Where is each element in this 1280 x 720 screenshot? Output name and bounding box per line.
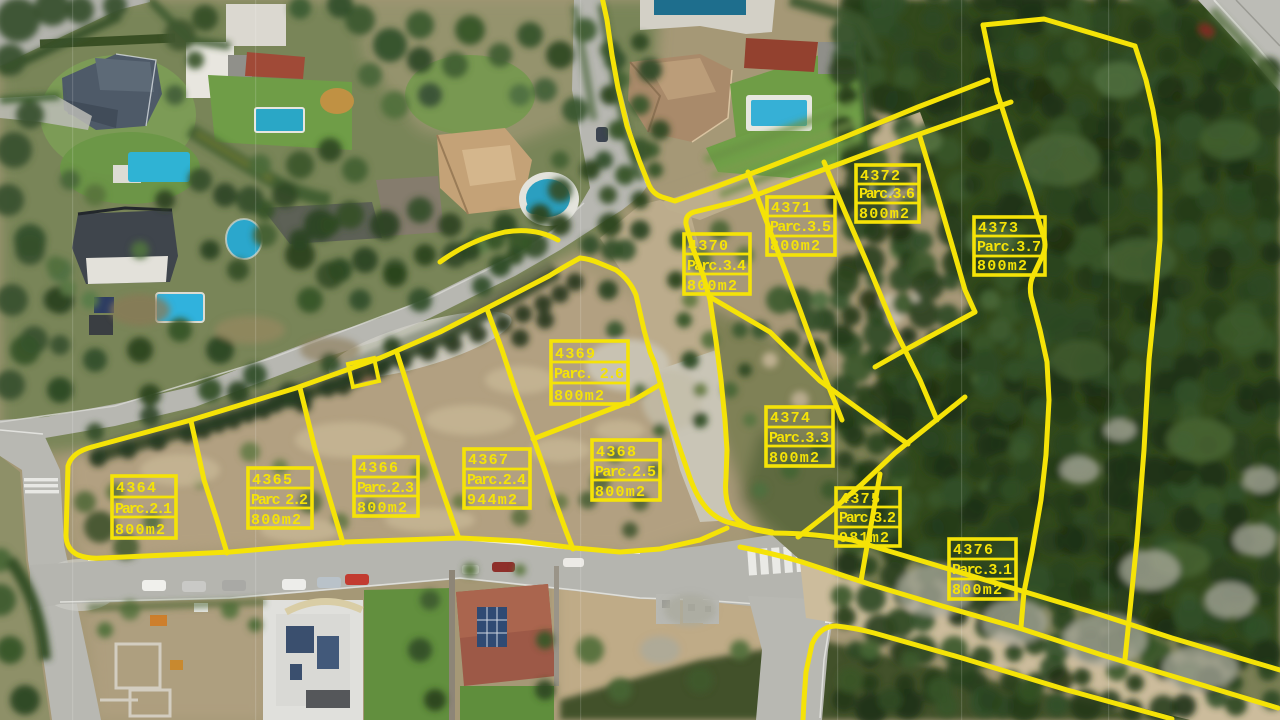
svg-text:Parc.2.5: Parc.2.5: [595, 464, 656, 481]
svg-text:4372: 4372: [860, 168, 900, 185]
svg-text:4375: 4375: [840, 491, 880, 508]
svg-text:944m2: 944m2: [467, 492, 517, 509]
svg-text:4373: 4373: [978, 220, 1018, 237]
svg-text:Parc.3.4: Parc.3.4: [687, 258, 746, 275]
svg-text:800m2: 800m2: [859, 206, 909, 223]
svg-text:800m2: 800m2: [554, 388, 604, 405]
svg-text:Parc.3.2: Parc.3.2: [839, 510, 896, 527]
svg-text:4376: 4376: [953, 542, 993, 559]
svg-text:Parc.3.1: Parc.3.1: [952, 562, 1012, 579]
svg-text:800m2: 800m2: [251, 512, 301, 529]
svg-text:800m2: 800m2: [770, 238, 820, 255]
svg-text:4364: 4364: [116, 480, 156, 497]
svg-text:800m2: 800m2: [357, 500, 407, 517]
svg-text:800m2: 800m2: [977, 258, 1027, 275]
svg-text:Parc.2.1: Parc.2.1: [115, 501, 172, 518]
svg-text:4365: 4365: [252, 472, 292, 489]
svg-text:4368: 4368: [596, 444, 636, 461]
svg-text:800m2: 800m2: [952, 582, 1002, 599]
svg-text:800m2: 800m2: [769, 450, 819, 467]
svg-text:4371: 4371: [771, 200, 811, 217]
svg-text:Parc.2.4: Parc.2.4: [467, 472, 526, 489]
svg-text:Parc.3.6: Parc.3.6: [859, 186, 915, 203]
svg-text:4367: 4367: [468, 452, 508, 469]
svg-text:Parc.3.3: Parc.3.3: [769, 430, 829, 447]
svg-text:Parc.2.3: Parc.2.3: [357, 480, 414, 497]
svg-text:Parc.3.5: Parc.3.5: [770, 219, 831, 236]
svg-text:Parc 2.2: Parc 2.2: [251, 492, 308, 509]
svg-text:981m2: 981m2: [839, 530, 889, 547]
svg-text:4374: 4374: [770, 410, 810, 427]
svg-text:4369: 4369: [555, 346, 595, 363]
svg-text:800m2: 800m2: [595, 484, 645, 501]
svg-text:800m2: 800m2: [115, 522, 165, 539]
svg-text:Parc.3.7: Parc.3.7: [977, 239, 1041, 256]
svg-text:4370: 4370: [688, 238, 728, 255]
svg-text:Parc. 2.6: Parc. 2.6: [554, 366, 624, 383]
svg-text:800m2: 800m2: [687, 278, 737, 295]
svg-text:4366: 4366: [358, 460, 398, 477]
